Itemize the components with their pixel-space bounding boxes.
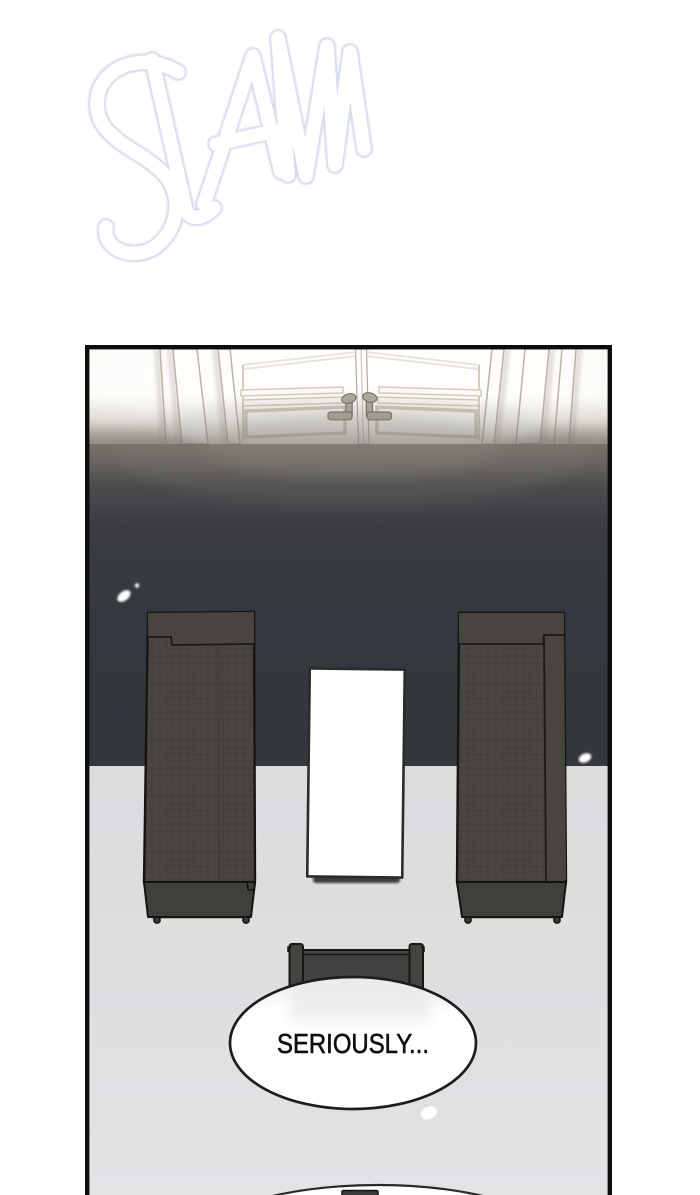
svg-text:SERIOUSLY...: SERIOUSLY...	[277, 1028, 429, 1059]
